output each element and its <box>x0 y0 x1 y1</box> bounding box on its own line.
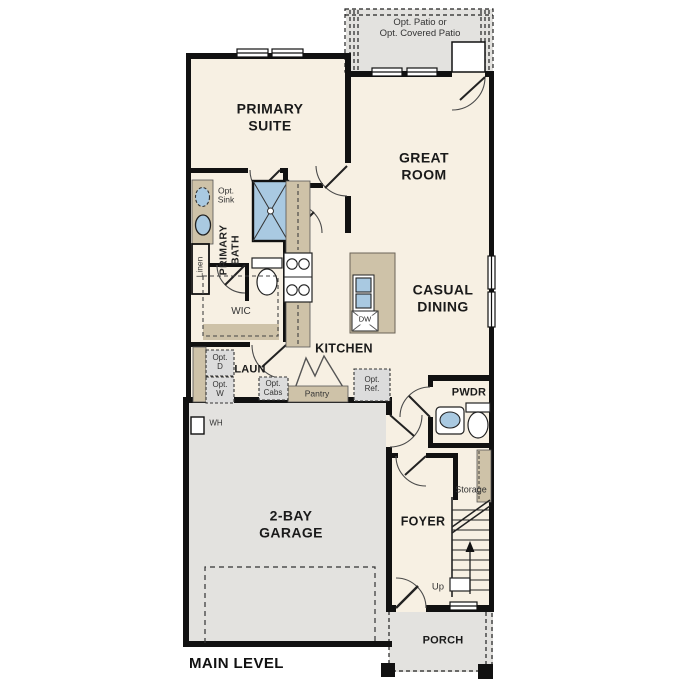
area-fills <box>185 9 494 672</box>
room-label-porch: PORCH <box>423 635 464 648</box>
vanity-sink <box>196 215 211 235</box>
room-label-foyer: FOYER <box>401 515 446 530</box>
plan-title: MAIN LEVEL <box>189 655 284 672</box>
label-up: Up <box>432 581 444 592</box>
label-pantry: Pantry <box>305 389 330 398</box>
powder-fixtures <box>436 403 490 438</box>
room-label-laundry: LAUN <box>234 364 265 377</box>
island-sink <box>353 275 374 311</box>
room-label-kitchen: KITCHEN <box>315 342 373 357</box>
label-storage: Storage <box>455 485 487 496</box>
powder-sink <box>436 407 464 434</box>
label-opt-sink: Opt. Sink <box>218 187 235 206</box>
patio-door-leaf <box>452 42 485 72</box>
label-opt-refrigerator: Opt. Ref. <box>364 376 379 394</box>
room-label-primary-suite: PRIMARY SUITE <box>237 100 304 133</box>
room-label-casual-dining: CASUAL DINING <box>413 281 474 314</box>
label-dishwasher: DW <box>358 316 373 325</box>
optional-sink <box>196 188 210 207</box>
water-heater <box>191 417 204 434</box>
room-label-primary-bath: PRIMARY BATH <box>218 225 243 276</box>
label-linen: Linen <box>195 257 204 278</box>
room-label-great-room: GREAT ROOM <box>399 149 449 182</box>
room-label-wic: WIC <box>231 306 250 318</box>
label-opt-cabinets: Opt. Cabs <box>264 380 283 398</box>
label-opt-washer: Opt. W <box>212 381 227 399</box>
floor-plan: Opt. Patio or Opt. Covered Patio PRIMARY… <box>0 0 687 687</box>
powder-toilet <box>466 403 490 438</box>
stair-landing <box>450 578 470 591</box>
label-water-heater: WH <box>209 420 222 429</box>
patio-label: Opt. Patio or Opt. Covered Patio <box>380 17 461 39</box>
range <box>284 253 312 302</box>
label-opt-dryer: Opt. D <box>212 354 227 372</box>
room-label-pwdr: PWDR <box>452 387 486 400</box>
room-label-garage: 2-BAY GARAGE <box>259 507 323 540</box>
